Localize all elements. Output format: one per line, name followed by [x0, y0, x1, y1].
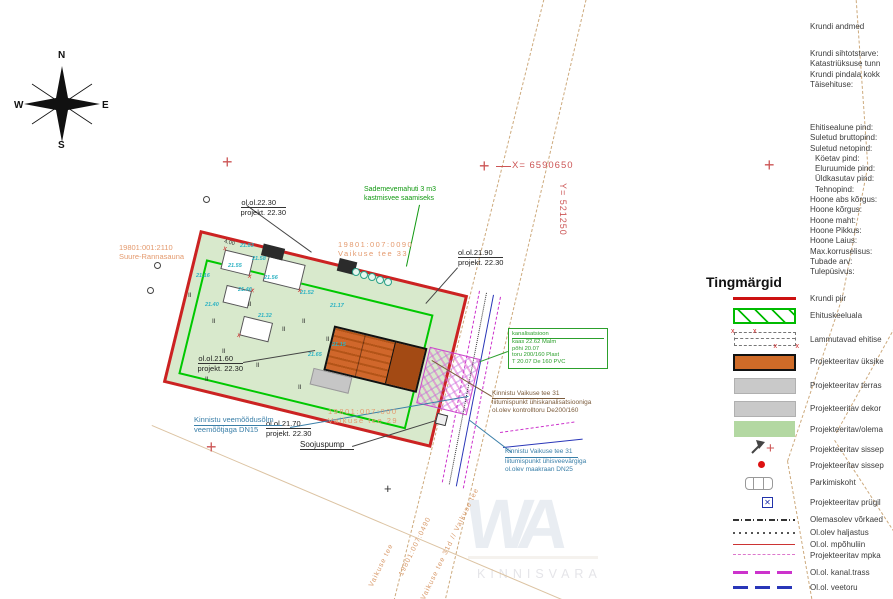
site-data-row: Suletud netopind:: [810, 144, 872, 153]
rain-tank-circle: [368, 273, 376, 281]
site-data-row: Hoone Laius:: [810, 236, 857, 245]
water-meter-label: Kinnistu veemõõdusõlm veemõõtjaga DN15: [194, 416, 282, 434]
legend-label: Krundi piir: [810, 294, 846, 303]
rain-tank-label: Sademevemahuti 3 m3kastmisvee saamiseks: [364, 186, 436, 203]
utility-stub-water: [503, 439, 583, 448]
compass-rose: N S W E: [14, 46, 110, 150]
rain-tank-circle: [352, 268, 360, 276]
grid-cross: +: [206, 438, 217, 456]
legend-label: Projekteeritav üksike: [810, 357, 884, 366]
spot-elevation-label: ol.ol.22.30projekt. 22.30: [204, 198, 286, 217]
elevation-mark: 21.17: [330, 303, 344, 309]
spot-elevation-label: ol.ol.21.90projekt. 22.30: [458, 248, 503, 267]
legend-title: Tingmärgid: [706, 274, 782, 290]
compass-s: S: [58, 140, 65, 150]
parcel-label-nw: 19801:001:2110Suure-Rannasauna: [119, 243, 184, 261]
watermark-underline: [468, 556, 598, 559]
legend-swatch-magenta-dash-line: [733, 571, 795, 574]
utility-stub-sewer: [500, 422, 574, 433]
sewer-connection-label: Kinnistu Vaikuse tee 31 liitumispunkt üh…: [492, 390, 591, 415]
site-data-row: Tehnopind:: [810, 185, 854, 194]
vegetation-mark: II: [188, 292, 192, 299]
coordinate-y-label: Y= 521250: [558, 183, 568, 236]
site-data-row: Max.korruselisus:: [810, 247, 872, 256]
spot-elevation-label: ol.ol.21.60projekt. 22.30: [185, 354, 243, 373]
water-connection-label: Kinnistu Vaikuse tee 31 liitumispunkt üh…: [505, 448, 586, 475]
site-data-title: Krundi andmed: [810, 22, 864, 32]
legend-label: Projekteeritav prügil: [810, 498, 881, 507]
site-data-row: Suletud bruttopind:: [810, 133, 877, 142]
site-data-row: Krundi sihtotstarve:: [810, 49, 878, 58]
building-wing: [385, 342, 425, 390]
legend-swatch-red-thin-line: [733, 544, 795, 545]
site-data-block-2: Ehitisealune pind: Suletud bruttopind: S…: [810, 123, 877, 277]
site-plan-page: WA KINNISVARA N S W E xx xx x: [0, 0, 893, 599]
tree-circle: [154, 262, 161, 269]
legend-swatch-gray-rect: [734, 378, 796, 394]
elevation-mark: 21.52: [300, 290, 314, 296]
legend-label: Projekteeritav mpka: [810, 551, 881, 560]
coordinate-x-label: X= 6590650: [512, 160, 574, 171]
legend-label: Parkimiskoht: [810, 478, 856, 487]
manhole-data-box: kanalisatsioon kaas 22.62 Malm põhi 20.0…: [508, 328, 608, 369]
legend-swatch-green-hatch: [733, 308, 796, 324]
legend-label: Ol.ol. kanal.trass: [810, 568, 870, 577]
vegetation-mark: II: [326, 336, 330, 343]
legend-swatch-pink-dash-line: [733, 554, 795, 555]
site-data-row: Eluruumide pind:: [810, 164, 875, 173]
legend-label: Olemasolev võrkaed: [810, 515, 883, 524]
vegetation-mark: II: [248, 301, 252, 308]
elevation-mark: 21.58: [252, 256, 266, 262]
site-data-row: Täisehituse:: [810, 80, 853, 89]
compass-e: E: [102, 100, 109, 111]
rain-tank-circle: [360, 271, 368, 279]
vegetation-mark: II: [298, 384, 302, 391]
coordinate-tick: [496, 166, 511, 167]
heat-pump-label: Soojuspump: [300, 440, 354, 450]
site-data-row: Katastriüksuse tunn: [810, 59, 880, 68]
site-data-row: Krundi pindala kokk: [810, 70, 880, 79]
legend-entry-cross: +: [766, 440, 775, 458]
site-data-row: Hoone maht:: [810, 216, 856, 225]
utility-pole-mark: +: [384, 480, 392, 498]
elevation-mark: 21.83: [240, 243, 254, 249]
legend-swatch-demolish: xx xx: [734, 332, 796, 346]
road-cadastre-label: 19801:007:0490: [398, 516, 433, 577]
site-data-row: Hoone kõrgus:: [810, 205, 862, 214]
legend-swatch-car-icon: [745, 477, 773, 490]
site-data-row: Ehitisealune pind:: [810, 123, 873, 132]
legend-swatch-gray-rect: [734, 401, 796, 417]
site-data-row: Köetav pind:: [810, 154, 859, 163]
legend-label: Ehituskeeluala: [810, 311, 862, 320]
legend-label: Projekteeritav sissep: [810, 445, 884, 454]
legend-label: Projekteeritav terras: [810, 381, 882, 390]
legend-label: Ol.olev haljastus: [810, 528, 869, 537]
site-data-row: Tulepüsivus:: [810, 267, 855, 276]
legend-swatch-orange-rect: [733, 354, 796, 371]
parcel-label-s: 19801:007:000Vaikuse tee 29: [328, 407, 398, 425]
compass-w: W: [14, 100, 24, 111]
vegetation-mark: II: [282, 326, 286, 333]
site-data-row: Tubade arv:: [810, 257, 852, 266]
grid-cross: +: [764, 156, 775, 174]
legend-swatch-entry-arrow-icon: [750, 440, 766, 454]
legend-swatch-fence-line: [733, 519, 795, 521]
tree-circle: [147, 287, 154, 294]
vegetation-mark: II: [205, 376, 209, 383]
legend-swatch-blue-dash-line: [733, 586, 795, 589]
elevation-mark: 21.65: [308, 352, 322, 358]
legend-label: Ol.ol. veetoru: [810, 583, 858, 592]
elevation-mark: 21.32: [258, 313, 272, 319]
parcel-label-ne: 19801:007:0090Vaikuse tee 33: [338, 240, 413, 258]
elevation-mark: 21.40: [205, 302, 219, 308]
elevation-mark: 21.55: [228, 263, 242, 269]
heat-pump-symbol: [435, 413, 448, 426]
legend-swatch-green-rect: [734, 421, 795, 437]
elevation-mark: 21.56: [264, 275, 278, 281]
legend-swatch-red-line: [733, 297, 796, 300]
road-name-label: Vaikuse tee: [368, 543, 395, 588]
rain-tank-circle: [376, 276, 384, 284]
legend-label: Ol.ol. mpõhuliin: [810, 540, 865, 549]
vegetation-mark: II: [256, 362, 260, 369]
legend-label: Lammutavad ehitise: [810, 335, 882, 344]
legend-swatch-dot-line: [733, 532, 795, 534]
grid-cross: +: [222, 153, 233, 171]
rain-tank-circle: [384, 278, 392, 286]
leader-line-green: [479, 351, 508, 362]
site-data-block-1: Krundi sihtotstarve: Katastriüksuse tunn…: [810, 49, 880, 90]
compass-n: N: [58, 50, 65, 61]
grid-cross: +: [479, 157, 490, 175]
site-data-row: Hoone Pikkus:: [810, 226, 862, 235]
legend-label: Projekteeritav/olema: [810, 425, 883, 434]
site-data-row: Hoone abs kõrgus:: [810, 195, 877, 204]
legend-label: Projekteeritav dekor: [810, 404, 881, 413]
elevation-mark: 21.16: [196, 273, 210, 279]
elevation-mark: 21.46: [238, 287, 252, 293]
legend-swatch-bin-icon: ✕: [762, 497, 773, 508]
compass-star: [24, 66, 100, 142]
vegetation-mark: II: [212, 318, 216, 325]
site-data-row: Üldkasutav pind:: [810, 174, 874, 183]
watermark-text: KINNISVARA: [477, 567, 602, 581]
legend-label: Projekteeritav sissep: [810, 461, 884, 470]
vegetation-mark: II: [302, 318, 306, 325]
elevation-mark: 21.15: [332, 342, 346, 348]
legend-swatch-red-dot: [758, 461, 765, 468]
